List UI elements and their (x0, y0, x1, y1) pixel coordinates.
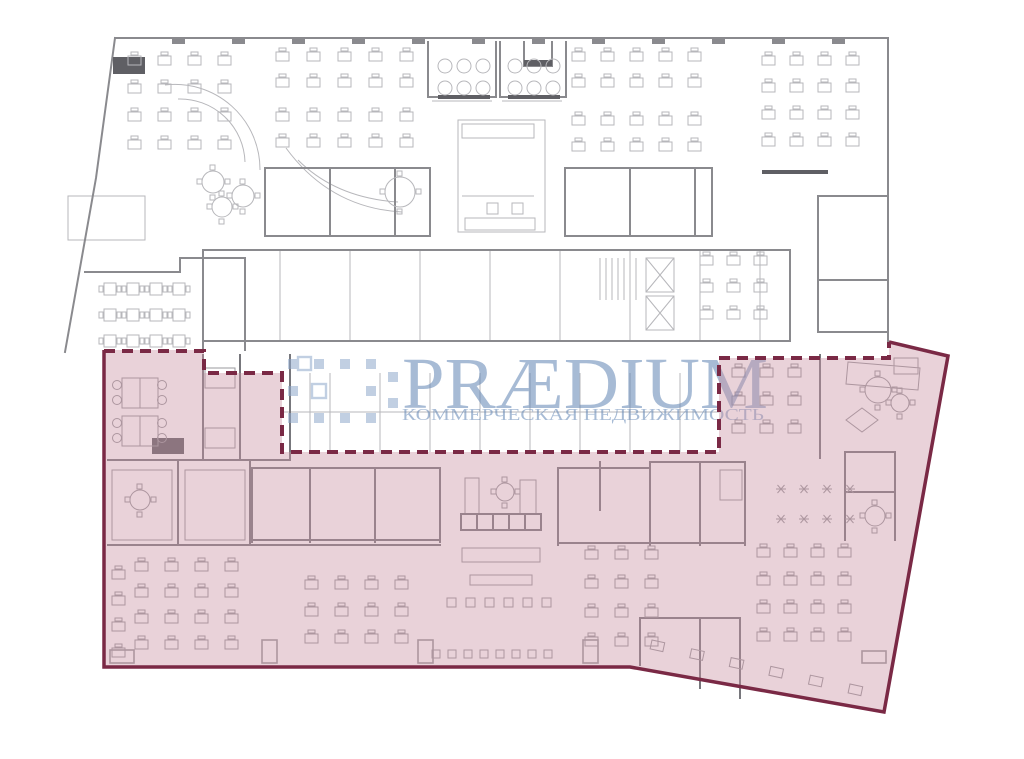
praedium-logo-icon (288, 357, 398, 423)
floor-plan-canvas: PRÆDIUM КОММЕРЧЕСКАЯ НЕДВИЖИМОСТЬ (0, 0, 1024, 759)
brand-tagline: КОММЕРЧЕСКАЯ НЕДВИЖИМОСТЬ (402, 405, 764, 424)
stair-hatch (600, 258, 636, 300)
floor-plan-page: PRÆDIUM КОММЕРЧЕСКАЯ НЕДВИЖИМОСТЬ (0, 0, 1024, 759)
